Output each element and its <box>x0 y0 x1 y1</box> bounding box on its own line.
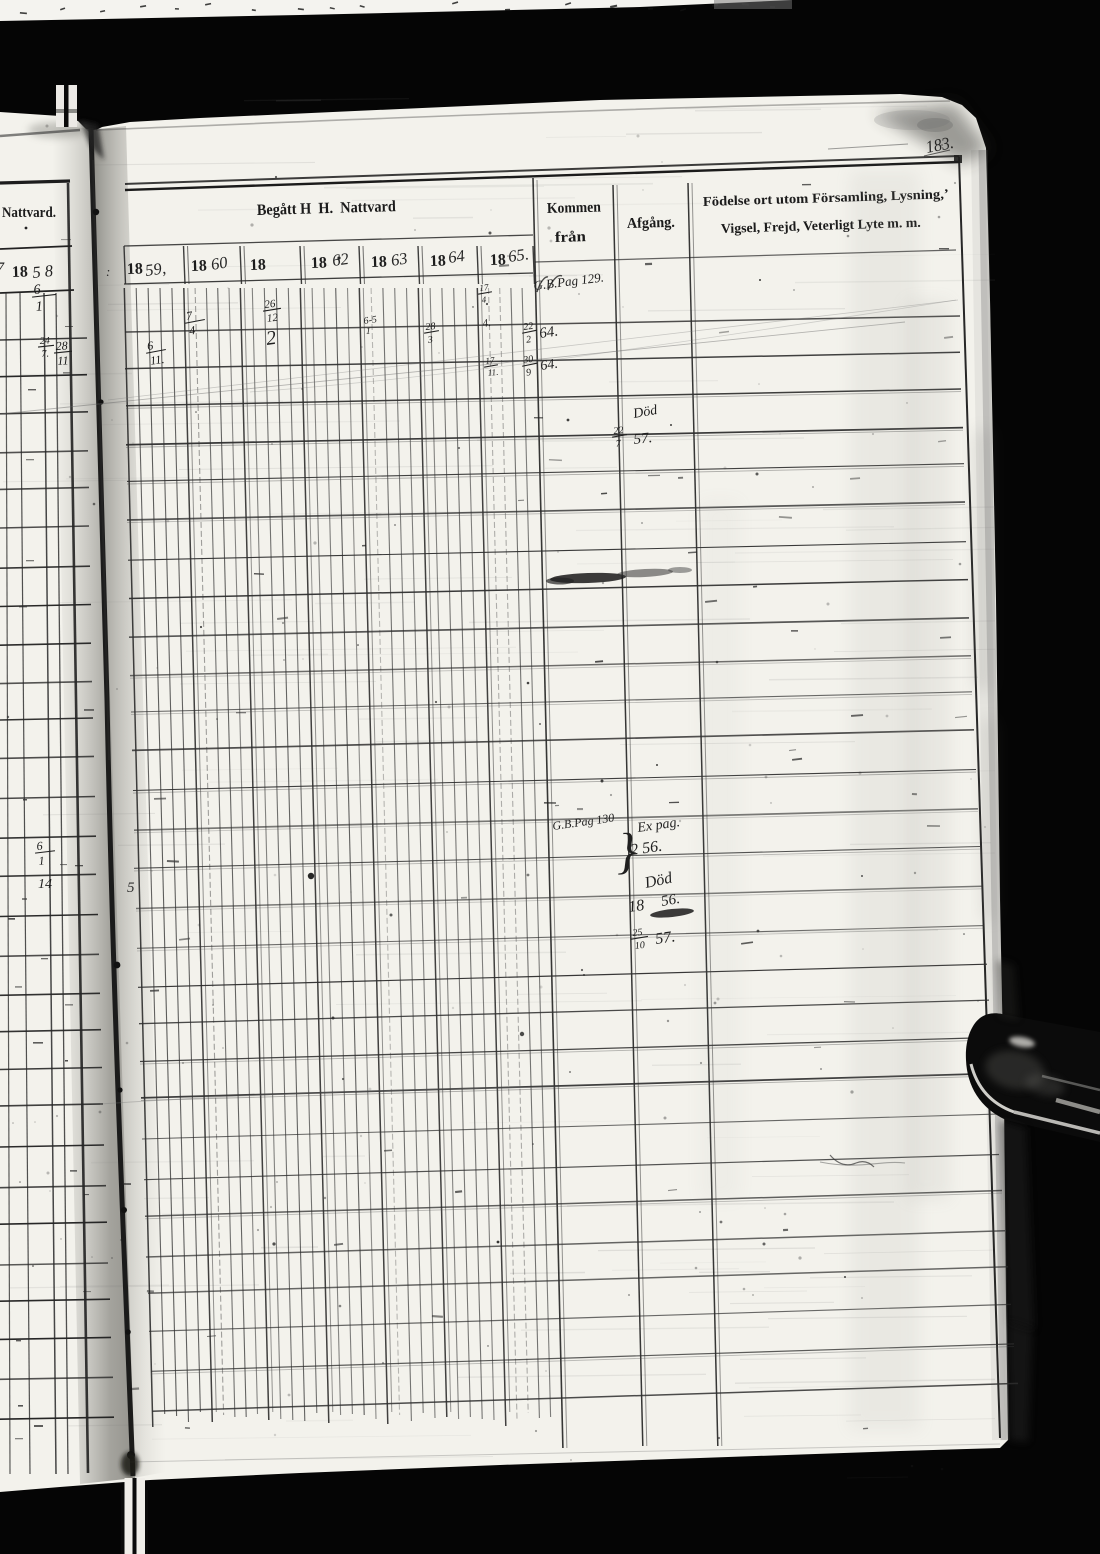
svg-text:10: 10 <box>634 940 645 952</box>
svg-text:17: 17 <box>479 282 489 293</box>
svg-text:63: 63 <box>389 248 409 270</box>
svg-text:7.: 7. <box>41 349 49 360</box>
svg-text:18: 18 <box>311 254 328 272</box>
svg-text:18: 18 <box>371 253 388 271</box>
svg-text:4.: 4. <box>482 317 492 330</box>
svg-text:5 8: 5 8 <box>31 261 54 282</box>
svg-text:6: 6 <box>33 283 41 298</box>
svg-text:11: 11 <box>57 353 69 368</box>
svg-text:57.: 57. <box>633 430 653 448</box>
svg-text:18: 18 <box>490 251 507 269</box>
svg-text:18: 18 <box>430 252 447 270</box>
svg-text:11.: 11. <box>487 367 499 378</box>
svg-text:57.: 57. <box>654 928 676 948</box>
svg-text:1: 1 <box>38 854 45 868</box>
svg-text:1: 1 <box>35 299 43 314</box>
svg-text:6: 6 <box>36 839 43 853</box>
svg-text:11.: 11. <box>149 352 165 368</box>
svg-text::: : <box>106 264 110 279</box>
svg-text:1: 1 <box>366 326 371 336</box>
svg-text:64.: 64. <box>538 324 559 342</box>
svg-text:18: 18 <box>627 897 645 916</box>
svg-text:18: 18 <box>12 263 29 281</box>
svg-text:5: 5 <box>127 880 135 896</box>
svg-text:64: 64 <box>447 246 466 267</box>
svg-text:från: från <box>555 229 587 246</box>
svg-text:56.: 56. <box>660 891 681 910</box>
svg-text:62: 62 <box>331 249 350 270</box>
svg-text:18: 18 <box>127 260 144 278</box>
svg-text:18: 18 <box>191 257 208 275</box>
svg-text:Afgång.: Afgång. <box>627 215 676 232</box>
svg-text:17: 17 <box>485 355 495 366</box>
svg-text:64.: 64. <box>539 357 558 374</box>
svg-text:24: 24 <box>39 335 50 347</box>
svg-text:12: 12 <box>266 312 279 325</box>
svg-text:Nattvard.: Nattvard. <box>2 205 56 221</box>
svg-text:3: 3 <box>426 334 433 346</box>
svg-text:28: 28 <box>55 338 68 353</box>
svg-text:65.: 65. <box>507 244 530 266</box>
svg-text:14: 14 <box>38 877 52 892</box>
svg-text:59,: 59, <box>144 258 167 280</box>
svg-text:Kommen: Kommen <box>547 200 602 217</box>
svg-text:18: 18 <box>250 256 267 274</box>
